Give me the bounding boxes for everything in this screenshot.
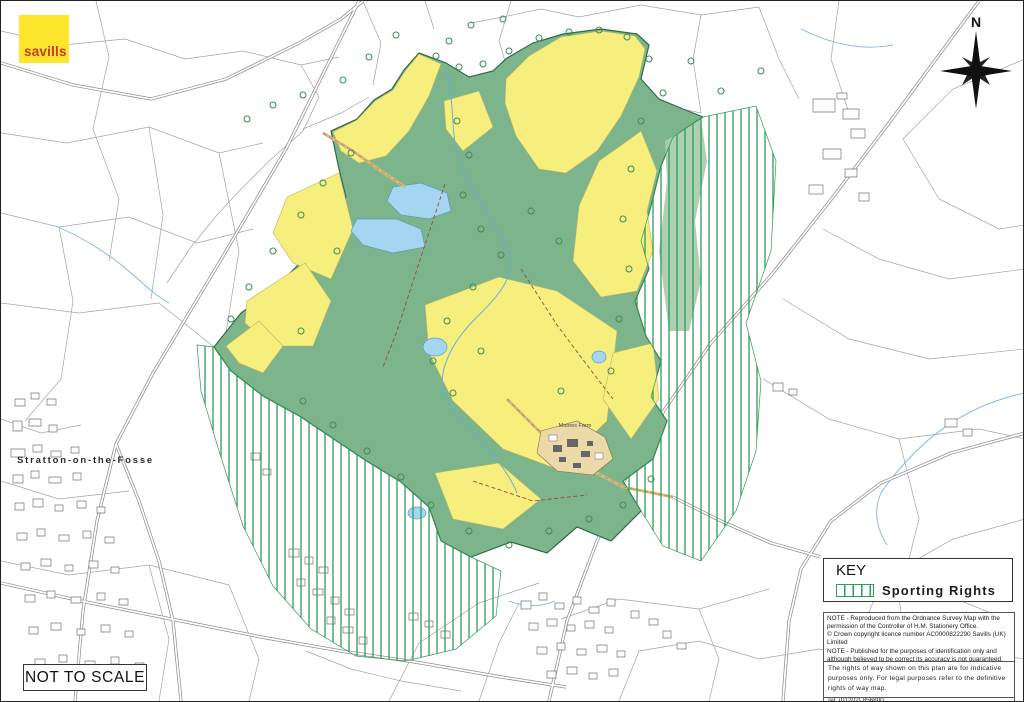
note-os: NOTE - Reproduced from the Ordnance Surv… [827, 615, 1000, 630]
notes-copyright: NOTE - Reproduced from the Ordnance Surv… [824, 613, 1014, 667]
key-box: KEY Sporting Rights [823, 558, 1013, 602]
rights-of-way-note: The rights of way shown on this plan are… [823, 661, 1015, 698]
pond [592, 351, 606, 363]
pond [423, 338, 447, 356]
map-sheet: Moores Farm N savills Stratton-on-the-Fo… [0, 0, 1024, 702]
key-item-sporting-rights: Sporting Rights [836, 583, 1012, 598]
village-label: Stratton-on-the-Fosse [17, 455, 154, 466]
savills-logo-text: savills [19, 45, 67, 64]
sporting-rights-swatch [836, 584, 874, 597]
farm-label: Moores Farm [559, 423, 592, 429]
savills-logo: savills [19, 15, 69, 63]
key-item-label: Sporting Rights [882, 583, 996, 598]
compass-north-label: N [971, 14, 981, 30]
scale-box: NOT TO SCALE [23, 664, 147, 691]
key-title: KEY [836, 563, 1012, 580]
note-crown: © Crown copyright licence number AC00008… [827, 631, 1006, 646]
